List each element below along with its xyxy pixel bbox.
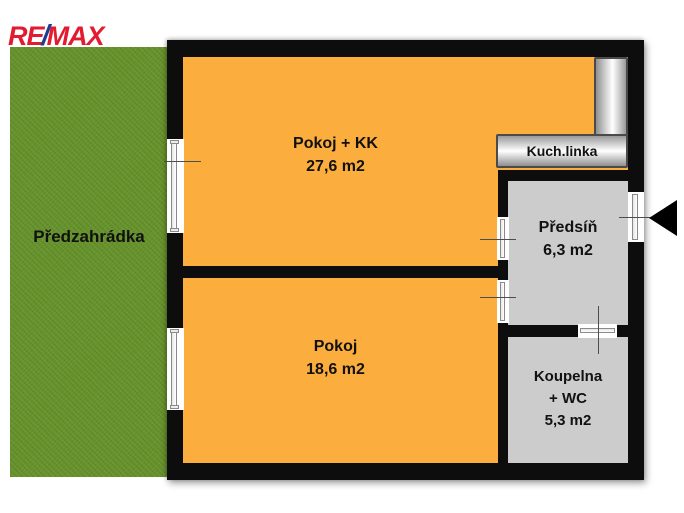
window-cap: [170, 228, 179, 232]
room-area: 6,3 m2: [508, 239, 628, 262]
garden-label: Předzahrádka: [10, 227, 168, 247]
window-pokoj-kk: [167, 139, 184, 233]
window-pane: [171, 142, 177, 230]
wall-between-rooms: [183, 266, 508, 278]
door-pokoj-predsin: [497, 280, 509, 323]
door-axis-line: [598, 306, 599, 354]
door-axis-line: [480, 297, 516, 298]
room-name: Předsíň: [508, 216, 628, 239]
room-area: 27,6 m2: [183, 155, 488, 178]
room-label-pokoj-kk: Pokoj + KK 27,6 m2: [183, 132, 488, 178]
room-label-koupelna: Koupelna + WC 5,3 m2: [508, 366, 628, 432]
kitchen-unit: Kuch.linka: [496, 134, 628, 168]
window-cap: [170, 140, 179, 144]
floorplan: Kuch.linka Pokoj + KK 27,6 m2 Pokoj 18,6…: [167, 40, 644, 480]
window-pane: [171, 331, 177, 407]
room-name: Koupelna: [508, 366, 628, 388]
room-area: 18,6 m2: [183, 358, 488, 381]
remax-logo-re: RE: [8, 21, 44, 51]
room-area: 5,3 m2: [508, 410, 628, 432]
window-cap: [170, 329, 179, 333]
entrance-arrow-icon: [649, 200, 677, 236]
room-label-pokoj: Pokoj 18,6 m2: [183, 335, 488, 381]
room-name-2: + WC: [508, 388, 628, 410]
garden-area: Předzahrádka: [10, 47, 168, 477]
wall-predsin-top: [498, 170, 628, 181]
room-name: Pokoj: [183, 335, 488, 358]
door-pane: [500, 282, 505, 321]
window-cap: [170, 405, 179, 409]
window-pokoj: [167, 328, 184, 410]
room-name: Pokoj + KK: [183, 132, 488, 155]
remax-logo-max: MAX: [47, 21, 104, 51]
room-label-predsin: Předsíň 6,3 m2: [508, 216, 628, 262]
kitchen-unit-label: Kuch.linka: [527, 143, 598, 159]
kitchen-counter: [594, 57, 628, 136]
remax-logo: RE/MAX: [8, 22, 104, 51]
